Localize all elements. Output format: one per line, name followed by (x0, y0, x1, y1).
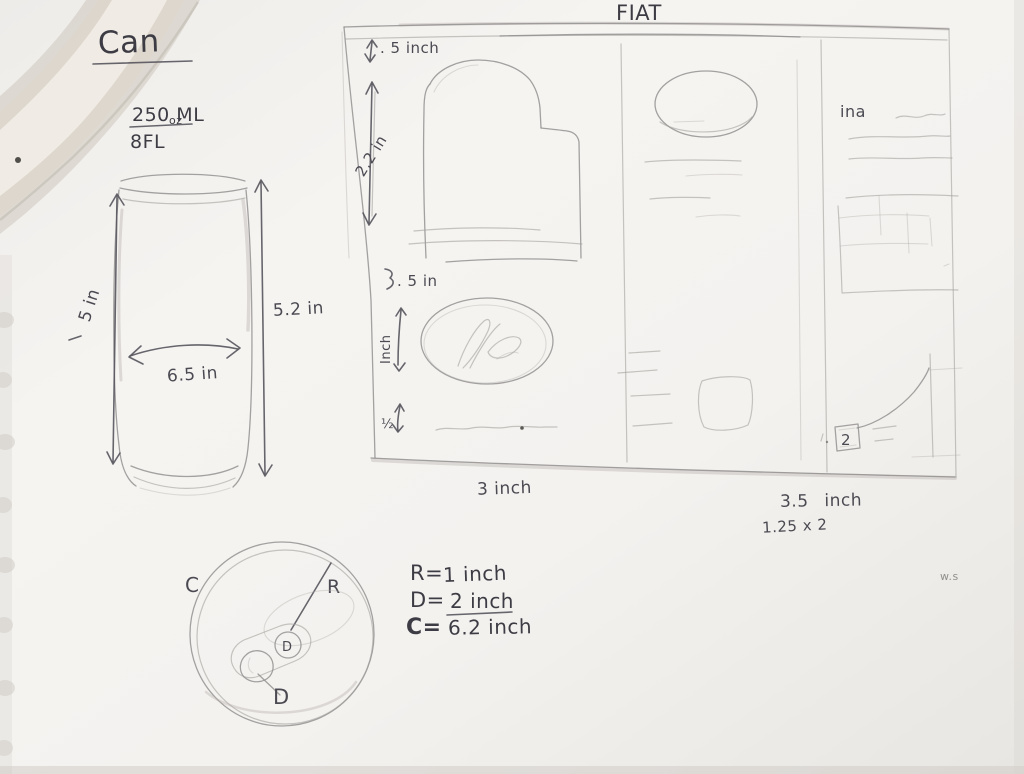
can-top-view: C R D D (185, 542, 374, 726)
logo-ellipse (421, 298, 553, 384)
table-grid (838, 195, 958, 293)
pull-tab-sketch: D D (231, 579, 361, 709)
radius-equation-rhs: 1 inch (443, 561, 508, 587)
left-height-label: 5 in (75, 286, 104, 324)
left-width-label: 3 inch (477, 478, 533, 500)
can-title: Can (97, 23, 160, 61)
diameter-equation-lhs: D= (410, 588, 445, 612)
volume-denominator: 8FL (130, 131, 165, 153)
volume-unit-superscript: oz (169, 114, 183, 127)
can-volume-fraction: 250 ML 8FL oz (130, 104, 204, 153)
tab-label: D (282, 640, 293, 655)
circumference-label: C (185, 573, 199, 597)
right-width-label: 3.5 inch (780, 490, 862, 511)
can-front-view: 5 in 5.2 in 6.5 in (69, 174, 324, 495)
diameter-label: D (273, 685, 290, 709)
circumference-equation-lhs: C= (406, 615, 442, 640)
header-height-dimension: . 5 inch (365, 39, 439, 62)
fiat-wireframe: FIAT (342, 1, 962, 583)
fiat-title: FIAT (616, 1, 662, 25)
circumference-equation-rhs: 6.2 inch (448, 614, 532, 639)
height-dimension-right: 5.2 in (255, 180, 324, 476)
radius-label: R (327, 576, 341, 598)
can-sketch: Can 250 ML 8FL oz 5 in (69, 23, 532, 726)
column-divider-2 (797, 60, 801, 460)
column-divider-1 (621, 44, 627, 462)
width-dimension: 6.5 in (129, 339, 240, 387)
column-divider-3 (821, 40, 827, 472)
page-number: 2 (841, 431, 851, 449)
curve-graph: 2 (821, 354, 962, 457)
gap-height-label: . 5 in (397, 272, 438, 290)
gap-height-dimension: . 5 in (385, 269, 438, 290)
header-height-label: . 5 inch (380, 39, 439, 57)
small-height-dimension: ½ (381, 404, 404, 432)
rounded-square (698, 377, 752, 430)
can-equations: R= 1 inch D= 2 inch C= 6.2 inch (406, 561, 532, 640)
wireframe-middle-column (618, 71, 757, 430)
bottom-measurements: 3 inch 3.5 inch 1.25 x 2 (477, 478, 863, 537)
radius-equation-lhs: R= (410, 561, 443, 585)
faint-note: w.s (940, 570, 959, 583)
logo-height-dimension: Inch (379, 308, 406, 371)
logo-height-label: Inch (379, 335, 394, 364)
diameter-equation-rhs: 2 inch (450, 589, 514, 613)
wireframe-right-column: ina (821, 102, 962, 457)
right-height-label: 5.2 in (272, 298, 324, 321)
sketch-paper: Can 250 ML 8FL oz 5 in (0, 0, 1024, 774)
scale-note-label: 1.25 x 2 (762, 515, 828, 536)
right-panel-label: ina (840, 102, 866, 121)
signature-squiggle (436, 426, 557, 430)
wireframe-left-column (409, 60, 582, 430)
tick-mark (69, 336, 81, 340)
width-label: 6.5 in (166, 363, 218, 387)
left-measurements: . 5 inch 2.2 in . 5 in Inch (351, 39, 439, 432)
height-dimension-left: 5 in (69, 194, 124, 464)
ink-speck (15, 157, 21, 163)
small-height-label: ½ (381, 417, 394, 432)
